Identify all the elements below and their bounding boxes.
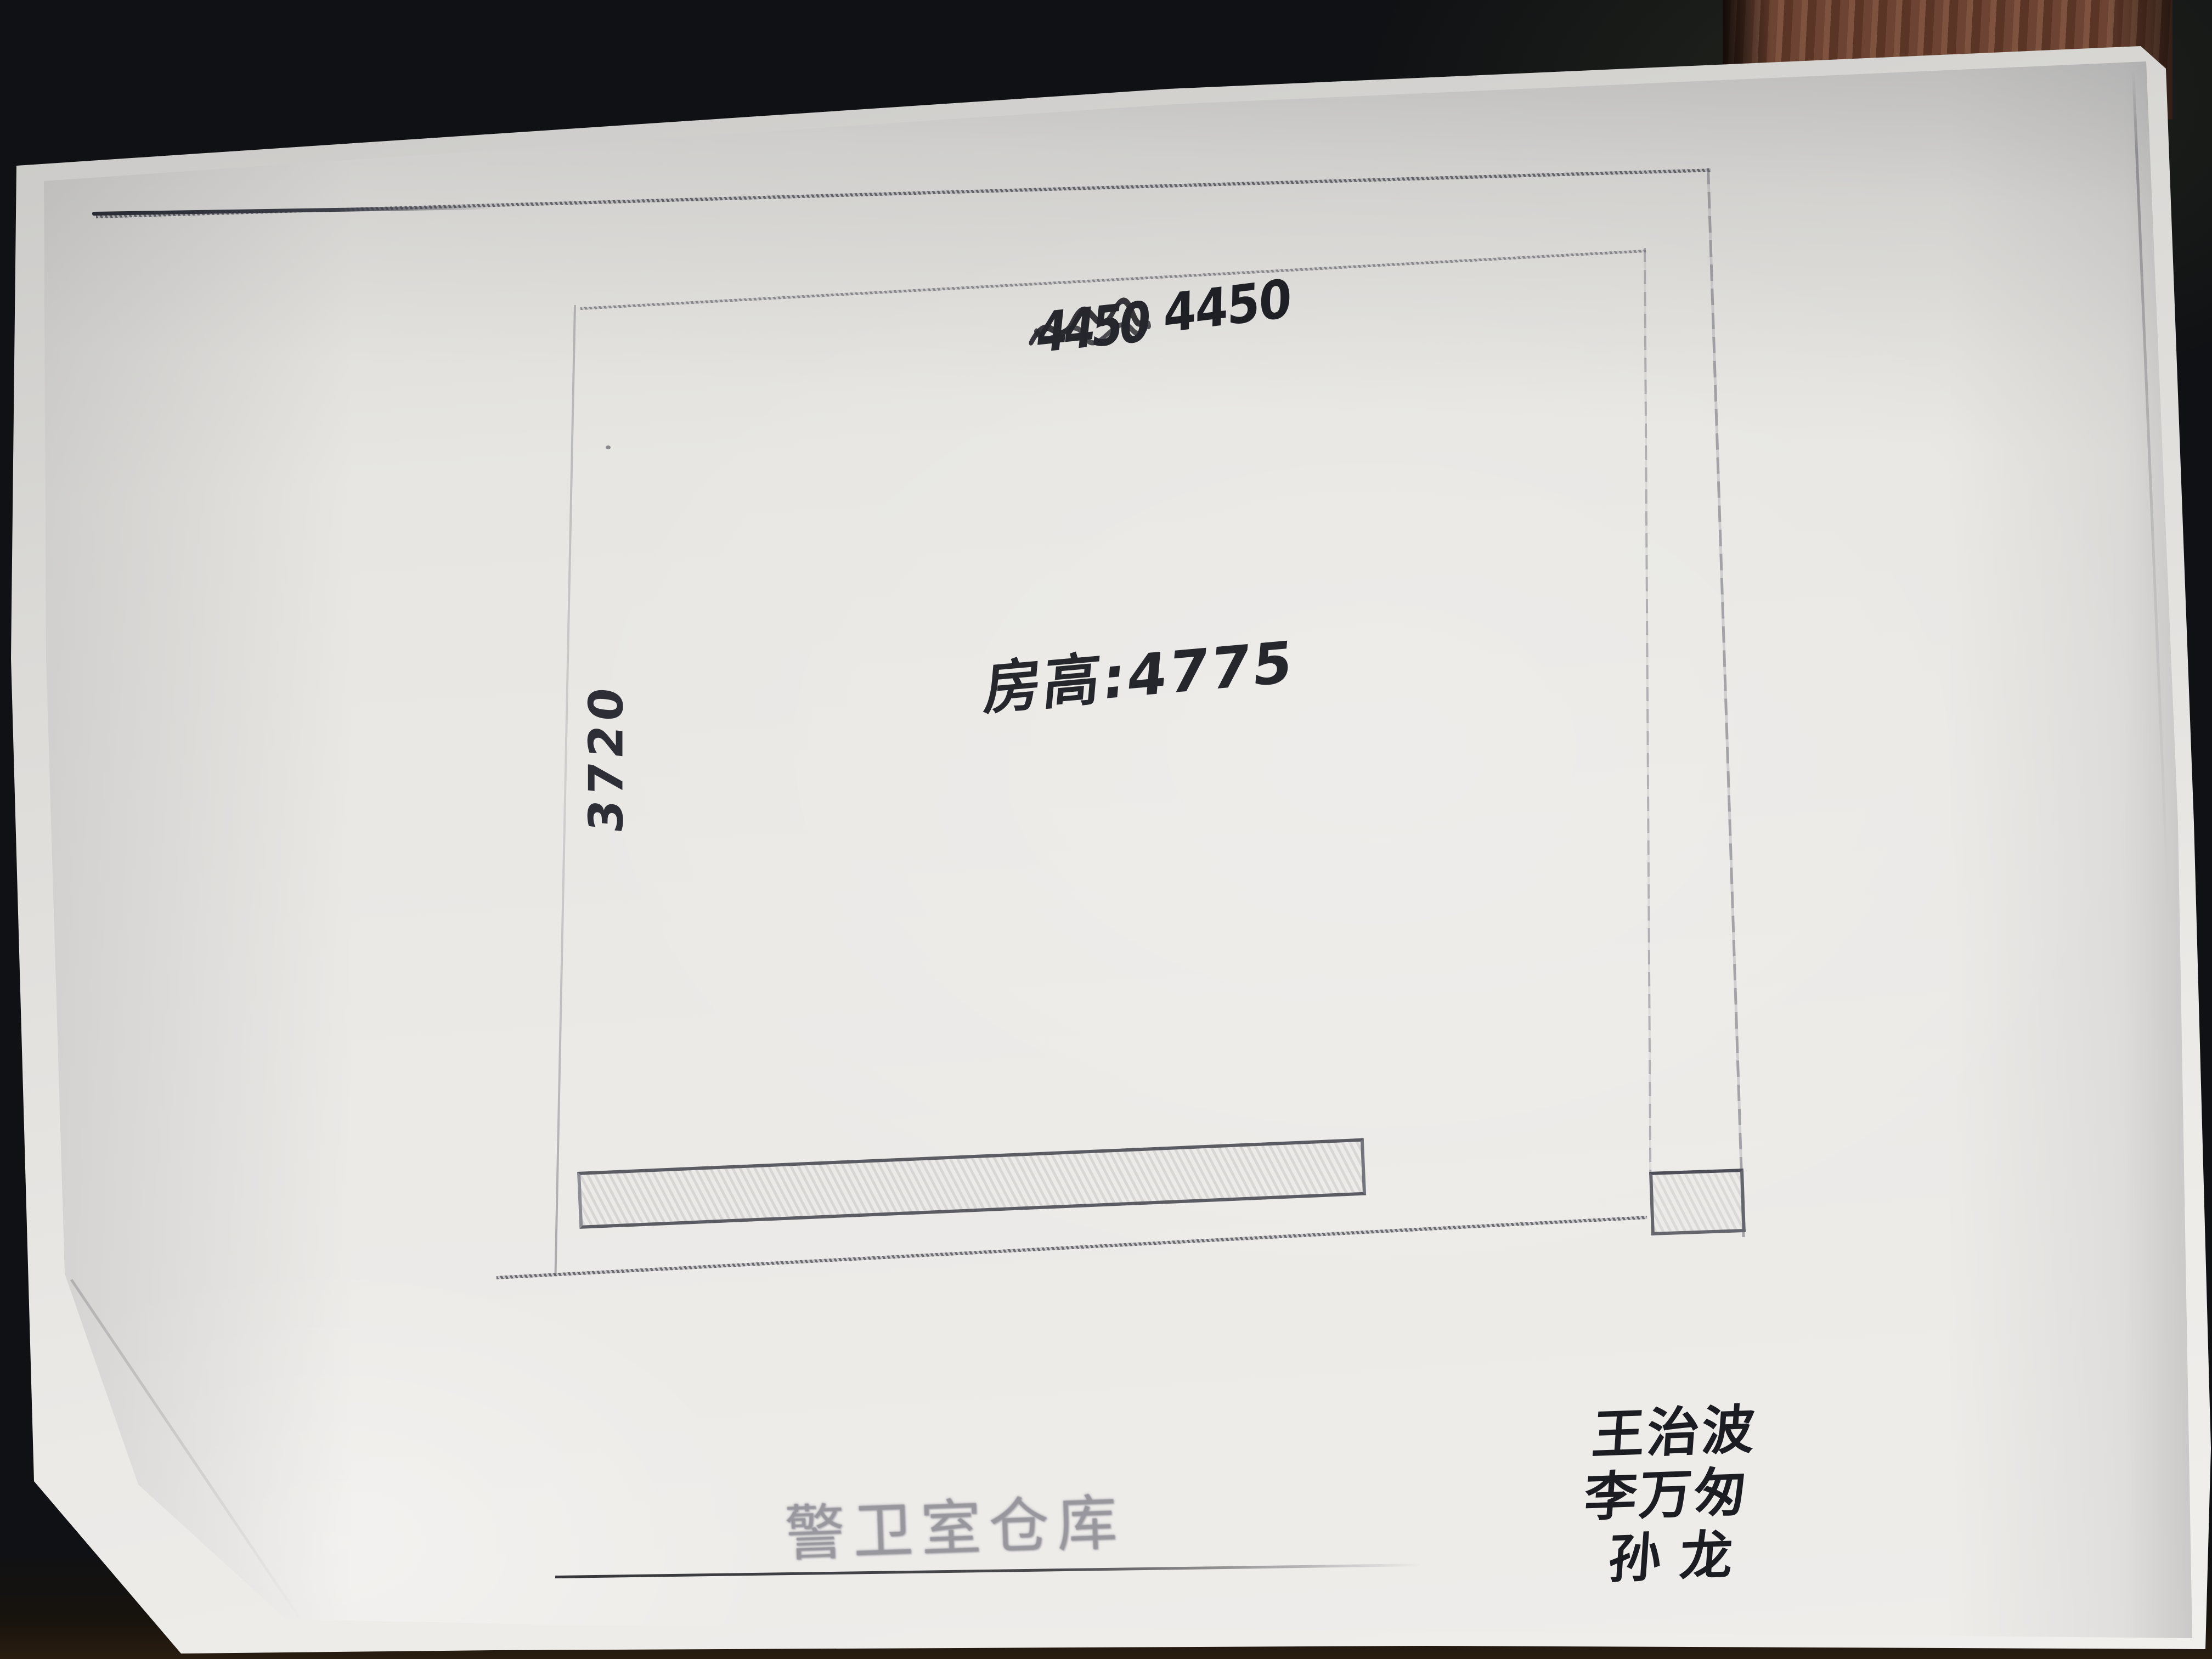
width-dimension-text: 4450	[1163, 268, 1291, 346]
signature-block: 王治波 李万匆 孙龙	[1581, 1398, 1762, 1592]
paper-shading-left	[0, 0, 2212, 1659]
signature: 李万匆	[1582, 1461, 1758, 1530]
paper-surface: 4450 4450 房高:4775 3720 警卫室仓库 王治波 李万匆 孙龙	[0, 0, 2212, 1659]
stray-pen-dot	[606, 445, 611, 449]
wall-right-inner-line	[1644, 248, 1651, 1175]
height-dimension: 3720	[557, 670, 656, 846]
wall-top-line-dark-segment	[92, 206, 493, 216]
room-height-note: 房高:4775	[981, 615, 1299, 726]
crossed-out-width-dimension: 4450	[1033, 289, 1150, 366]
width-dimension: 4450	[1163, 268, 1291, 346]
bottom-right-wall-stub	[1649, 1169, 1746, 1235]
strikethrough-scribble	[1021, 273, 1161, 381]
drawing-caption: 警卫室仓库	[783, 1473, 1126, 1573]
sheet-footer-line	[555, 1564, 1422, 1578]
signature: 王治波	[1590, 1398, 1762, 1466]
signature: 孙龙	[1606, 1523, 1753, 1591]
paper-shading-top	[0, 0, 2212, 1659]
height-dimension-text: 3720	[579, 681, 634, 836]
photo-of-floor-plan-document: 4450 4450 房高:4775 3720 警卫室仓库 王治波 李万匆 孙龙	[0, 0, 2212, 1659]
room-height-text: 房高:4775	[981, 628, 1297, 723]
paper-shading-right	[0, 0, 2212, 1659]
wall-bottom-outer-line	[496, 1216, 1647, 1279]
bottom-thick-wall	[577, 1138, 1366, 1229]
wall-right-outer-line	[1707, 168, 1745, 1237]
